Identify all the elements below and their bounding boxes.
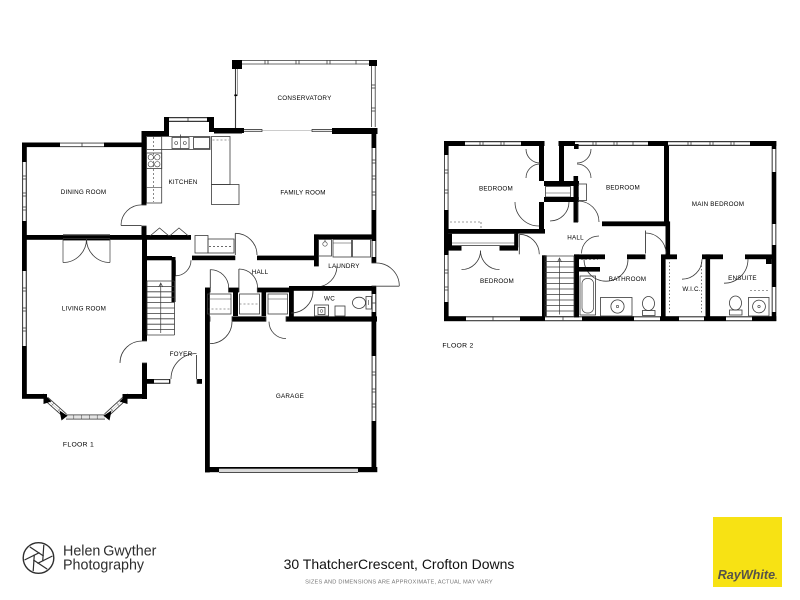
svg-text:ENSUITE: ENSUITE — [728, 275, 757, 282]
svg-text:30 ThatcherCrescent, Crofton D: 30 ThatcherCrescent, Crofton Downs — [284, 556, 515, 572]
svg-text:FLOOR 1: FLOOR 1 — [63, 442, 94, 449]
svg-text:BATHROOM: BATHROOM — [609, 276, 647, 283]
svg-text:KITCHEN: KITCHEN — [168, 179, 197, 186]
svg-text:FOYER: FOYER — [170, 351, 193, 358]
svg-text:FLOOR 2: FLOOR 2 — [442, 343, 473, 350]
svg-text:RayWhite.: RayWhite. — [718, 568, 778, 582]
svg-text:DINING ROOM: DINING ROOM — [61, 189, 107, 196]
svg-text:LIVING ROOM: LIVING ROOM — [62, 306, 106, 313]
svg-text:HALL: HALL — [567, 235, 584, 242]
svg-text:CONSERVATORY: CONSERVATORY — [278, 95, 333, 102]
svg-text:GARAGE: GARAGE — [276, 393, 304, 400]
svg-text:Photography: Photography — [63, 558, 145, 574]
svg-text:HALL: HALL — [252, 269, 269, 276]
svg-text:BEDROOM: BEDROOM — [479, 186, 513, 193]
svg-text:SIZES AND DIMENSIONS ARE APPRO: SIZES AND DIMENSIONS ARE APPROXIMATE, AC… — [305, 580, 493, 586]
svg-text:FAMILY ROOM: FAMILY ROOM — [280, 190, 325, 197]
svg-text:BEDROOM: BEDROOM — [606, 185, 640, 192]
svg-text:BEDROOM: BEDROOM — [480, 278, 514, 285]
svg-text:W.I.C.: W.I.C. — [682, 286, 700, 293]
svg-text:WC: WC — [324, 296, 335, 303]
svg-text:LAUNDRY: LAUNDRY — [328, 263, 360, 270]
svg-text:MAIN BEDROOM: MAIN BEDROOM — [692, 201, 744, 208]
